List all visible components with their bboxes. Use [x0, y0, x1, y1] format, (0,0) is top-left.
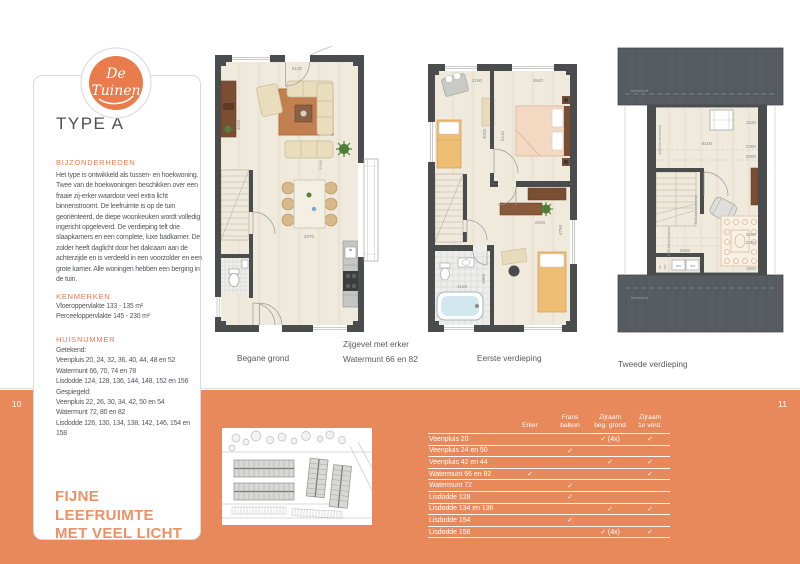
huisnummer-list: Getekend: Veenpluis 20, 24, 32, 36, 40, …: [56, 346, 202, 440]
floorplan-tweede-verdieping: knieschot knieschot: [617, 42, 785, 338]
cell-zijraam-beg-grond: ✓: [590, 458, 630, 466]
huisnummer-line: Veenpluis 22, 26, 30, 34, 42, 50 en 54: [56, 398, 202, 408]
row-label: Lisdodde 158: [428, 529, 510, 536]
roof-bottom: knieschot: [618, 275, 783, 332]
cell-frans-balkon: ✓: [550, 447, 590, 455]
svg-text:1500: 1500: [746, 266, 757, 271]
huisnummer-line: Gespiegeld:: [56, 388, 202, 398]
svg-text:5110: 5110: [500, 131, 505, 141]
cell-zijraam-beg-grond: ✓ (4x): [590, 435, 630, 443]
floorplan-begane-grond: 5100 4000 2970 0.000: [215, 45, 379, 337]
huisnummer-line: Watermunt 72, 80 en 82: [56, 408, 202, 418]
table-row: Lisdodde 128 ✓: [428, 491, 670, 503]
options-table-body: Veenpluis 20 ✓ (4x) ✓ Veenpluis 24 en 50…: [428, 433, 670, 538]
housing-block-left: [234, 460, 294, 500]
dakraam-skylight: [710, 110, 733, 130]
brochure-page: 10 11 TYPE A BIJZONDERHEDEN Het type is …: [0, 0, 800, 564]
svg-text:5100: 5100: [292, 66, 303, 71]
cell-frans-balkon: ✓: [550, 482, 590, 490]
column-header-zijraam-1e-verd: Zijraam 1e verd.: [630, 414, 670, 430]
page-number-right: 11: [778, 399, 787, 409]
huisnummer-line: Watermunt 66, 70, 74 en 78: [56, 367, 202, 377]
caption-begane-grond: Begane grond: [237, 351, 289, 366]
svg-text:2050: 2050: [680, 248, 691, 253]
table-row: Lisdodde 154 ✓: [428, 514, 670, 526]
tagline-line1: FIJNE LEEFRUIMTE: [55, 488, 200, 525]
row-label: Veenpluis 42 en 44: [428, 459, 510, 466]
table-row: Lisdodde 158 ✓ (4x) ✓: [428, 526, 670, 539]
svg-text:De: De: [105, 66, 126, 82]
table-row: Watermunt 72 ✓: [428, 479, 670, 491]
dining-set: [282, 180, 337, 228]
svg-text:1950: 1950: [481, 273, 486, 284]
logo-seal-icon: De Tuinen: [80, 47, 152, 119]
cell-zijraam-beg-grond: ✓: [590, 505, 630, 513]
caption-zijgevel: Zijgevel met erker Watermunt 66 en 82: [343, 337, 418, 366]
svg-text:1800 tot knieschot: 1800 tot knieschot: [667, 227, 671, 256]
row-label: Veenpluis 24 en 50: [428, 447, 510, 454]
cell-zijraam-1e-verd: ✓: [630, 435, 670, 443]
options-table: Erker Frans balkon Zijraam beg. grond Zi…: [428, 401, 670, 538]
column-header-zijraam-beg-grond: Zijraam beg. grond: [590, 414, 630, 430]
svg-text:2840: 2840: [535, 220, 546, 225]
plant: [336, 141, 352, 157]
row-label: Lisdodde 128: [428, 494, 510, 501]
kenmerken-heading: KENMERKEN: [56, 292, 110, 301]
table-row: Veenpluis 24 en 50 ✓: [428, 445, 670, 457]
cabinet: [221, 81, 236, 137]
svg-text:2300: 2300: [746, 144, 757, 149]
trees: [229, 431, 346, 451]
svg-text:2600: 2600: [746, 232, 757, 237]
cell-frans-balkon: ✓: [550, 516, 590, 524]
row-label: Lisdodde 154: [428, 517, 510, 524]
svg-text:7640 tot knieschot: 7640 tot knieschot: [694, 195, 698, 224]
cell-zijraam-1e-verd: ✓: [630, 528, 670, 536]
svg-text:2600: 2600: [746, 154, 757, 159]
cell-zijraam-1e-verd: ✓: [630, 505, 670, 513]
kitchen: [343, 241, 358, 307]
huisnummer-line: Veenpluis 20, 24, 32, 36, 40, 44, 48 en …: [56, 356, 202, 366]
svg-text:4000: 4000: [236, 119, 241, 130]
roof-top: knieschot: [618, 48, 783, 105]
erker-bay-window: [358, 159, 378, 261]
caption-zijgevel-line2: Watermunt 66 en 82: [343, 352, 418, 367]
svg-text:2060 tot knieschot: 2060 tot knieschot: [658, 125, 662, 154]
huisnummer-line: Lisdodde 124, 128, 136, 144, 148, 152 en…: [56, 377, 202, 387]
svg-text:2190: 2190: [472, 78, 483, 83]
cell-erker: ✓: [510, 470, 550, 478]
cell-frans-balkon: ✓: [550, 493, 590, 501]
svg-text:wm: wm: [676, 264, 682, 268]
site-map-drawing: [222, 428, 372, 525]
svg-text:wd: wd: [690, 264, 695, 268]
huisnummer-line: Lisdodde 126, 130, 134, 138, 142, 146, 1…: [56, 419, 202, 440]
site-map: [222, 428, 372, 525]
bijzonderheden-heading: BIJZONDERHEDEN: [56, 158, 135, 167]
column-header-erker: Erker: [510, 422, 550, 430]
kenmerken-list: Vloeroppervlakte 133 - 135 m² Perceelopp…: [56, 302, 202, 323]
svg-text:2840: 2840: [533, 78, 544, 83]
caption-eerste-verdieping: Eerste verdieping: [477, 351, 542, 366]
svg-text:mv: mv: [663, 264, 667, 269]
tagline: FIJNE LEEFRUIMTE MET VEEL LICHT: [55, 488, 200, 544]
svg-text:2970: 2970: [304, 234, 315, 239]
svg-text:4790: 4790: [558, 224, 563, 235]
parking-strips: [232, 507, 342, 518]
svg-text:cv: cv: [658, 265, 662, 269]
options-table-header: Erker Frans balkon Zijraam beg. grond Zi…: [428, 401, 670, 433]
kenmerken-line: Vloeroppervlakte 133 - 135 m²: [56, 302, 202, 312]
page-number-left: 10: [12, 399, 21, 409]
table-row: Veenpluis 42 en 44 ✓ ✓: [428, 456, 670, 468]
table-row: Lisdodde 134 en 136 ✓ ✓: [428, 503, 670, 515]
svg-text:knieschot: knieschot: [631, 295, 649, 300]
housing-block-right: [305, 458, 352, 508]
table-row: Watermunt 66 en 82 ✓ ✓: [428, 468, 670, 480]
stairs: [435, 174, 463, 242]
table-row: Veenpluis 20 ✓ (4x) ✓: [428, 433, 670, 445]
svg-text:5100: 5100: [702, 141, 713, 146]
row-label: Watermunt 72: [428, 482, 510, 489]
stairs: [656, 172, 696, 226]
cell-zijraam-beg-grond: ✓ (4x): [590, 528, 630, 536]
row-label: Watermunt 66 en 82: [428, 471, 510, 478]
svg-text:2200: 2200: [746, 240, 757, 245]
column-header-frans-balkon: Frans balkon: [550, 414, 590, 430]
row-label: Veenpluis 20: [428, 436, 510, 443]
wardrobe: [751, 168, 758, 205]
svg-text:1520: 1520: [746, 120, 757, 125]
tagline-line2: MET VEEL LICHT: [55, 525, 200, 544]
svg-text:2150: 2150: [457, 284, 468, 289]
row-label: Lisdodde 134 en 136: [428, 505, 510, 512]
svg-text:4000: 4000: [482, 128, 487, 139]
caption-tweede-verdieping: Tweede verdieping: [618, 357, 688, 372]
caption-zijgevel-line1: Zijgevel met erker: [343, 337, 418, 352]
huisnummer-line: Getekend:: [56, 346, 202, 356]
bedroom-master: [516, 96, 570, 166]
toilet-room: [221, 258, 249, 294]
info-card: TYPE A BIJZONDERHEDEN Het type is ontwik…: [33, 75, 201, 540]
svg-text:0.000: 0.000: [319, 160, 323, 170]
stairs: [221, 170, 249, 240]
cell-zijraam-1e-verd: ✓: [630, 458, 670, 466]
bijzonderheden-text: Het type is ontwikkeld als tussen- en ho…: [56, 171, 202, 285]
svg-text:knieschot: knieschot: [631, 88, 649, 93]
floorplan-eerste-verdieping: 2190 2840 4000 5110 2840 4790 1950 2150: [428, 64, 578, 332]
cell-zijraam-1e-verd: ✓: [630, 470, 670, 478]
logo-de-tuinen: De Tuinen: [80, 47, 152, 119]
huisnummer-heading: HUISNUMMER: [56, 335, 115, 344]
kenmerken-line: Perceeloppervlakte 145 - 230 m²: [56, 312, 202, 322]
